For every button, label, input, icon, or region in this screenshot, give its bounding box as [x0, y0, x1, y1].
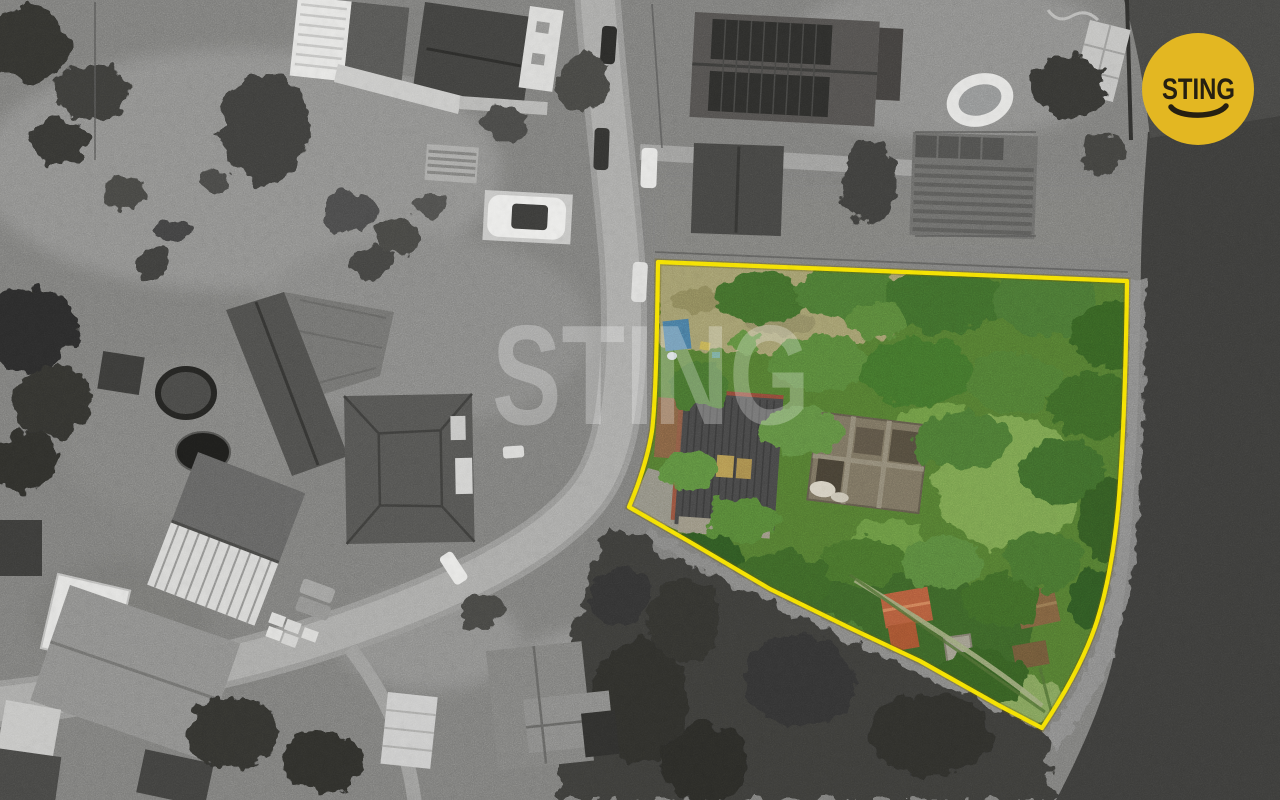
aerial-photo: STING STING: [0, 0, 1280, 800]
logo-text: STING: [1162, 73, 1235, 106]
sting-logo-badge: STING: [1142, 33, 1254, 145]
watermark-text: STING: [492, 296, 810, 455]
